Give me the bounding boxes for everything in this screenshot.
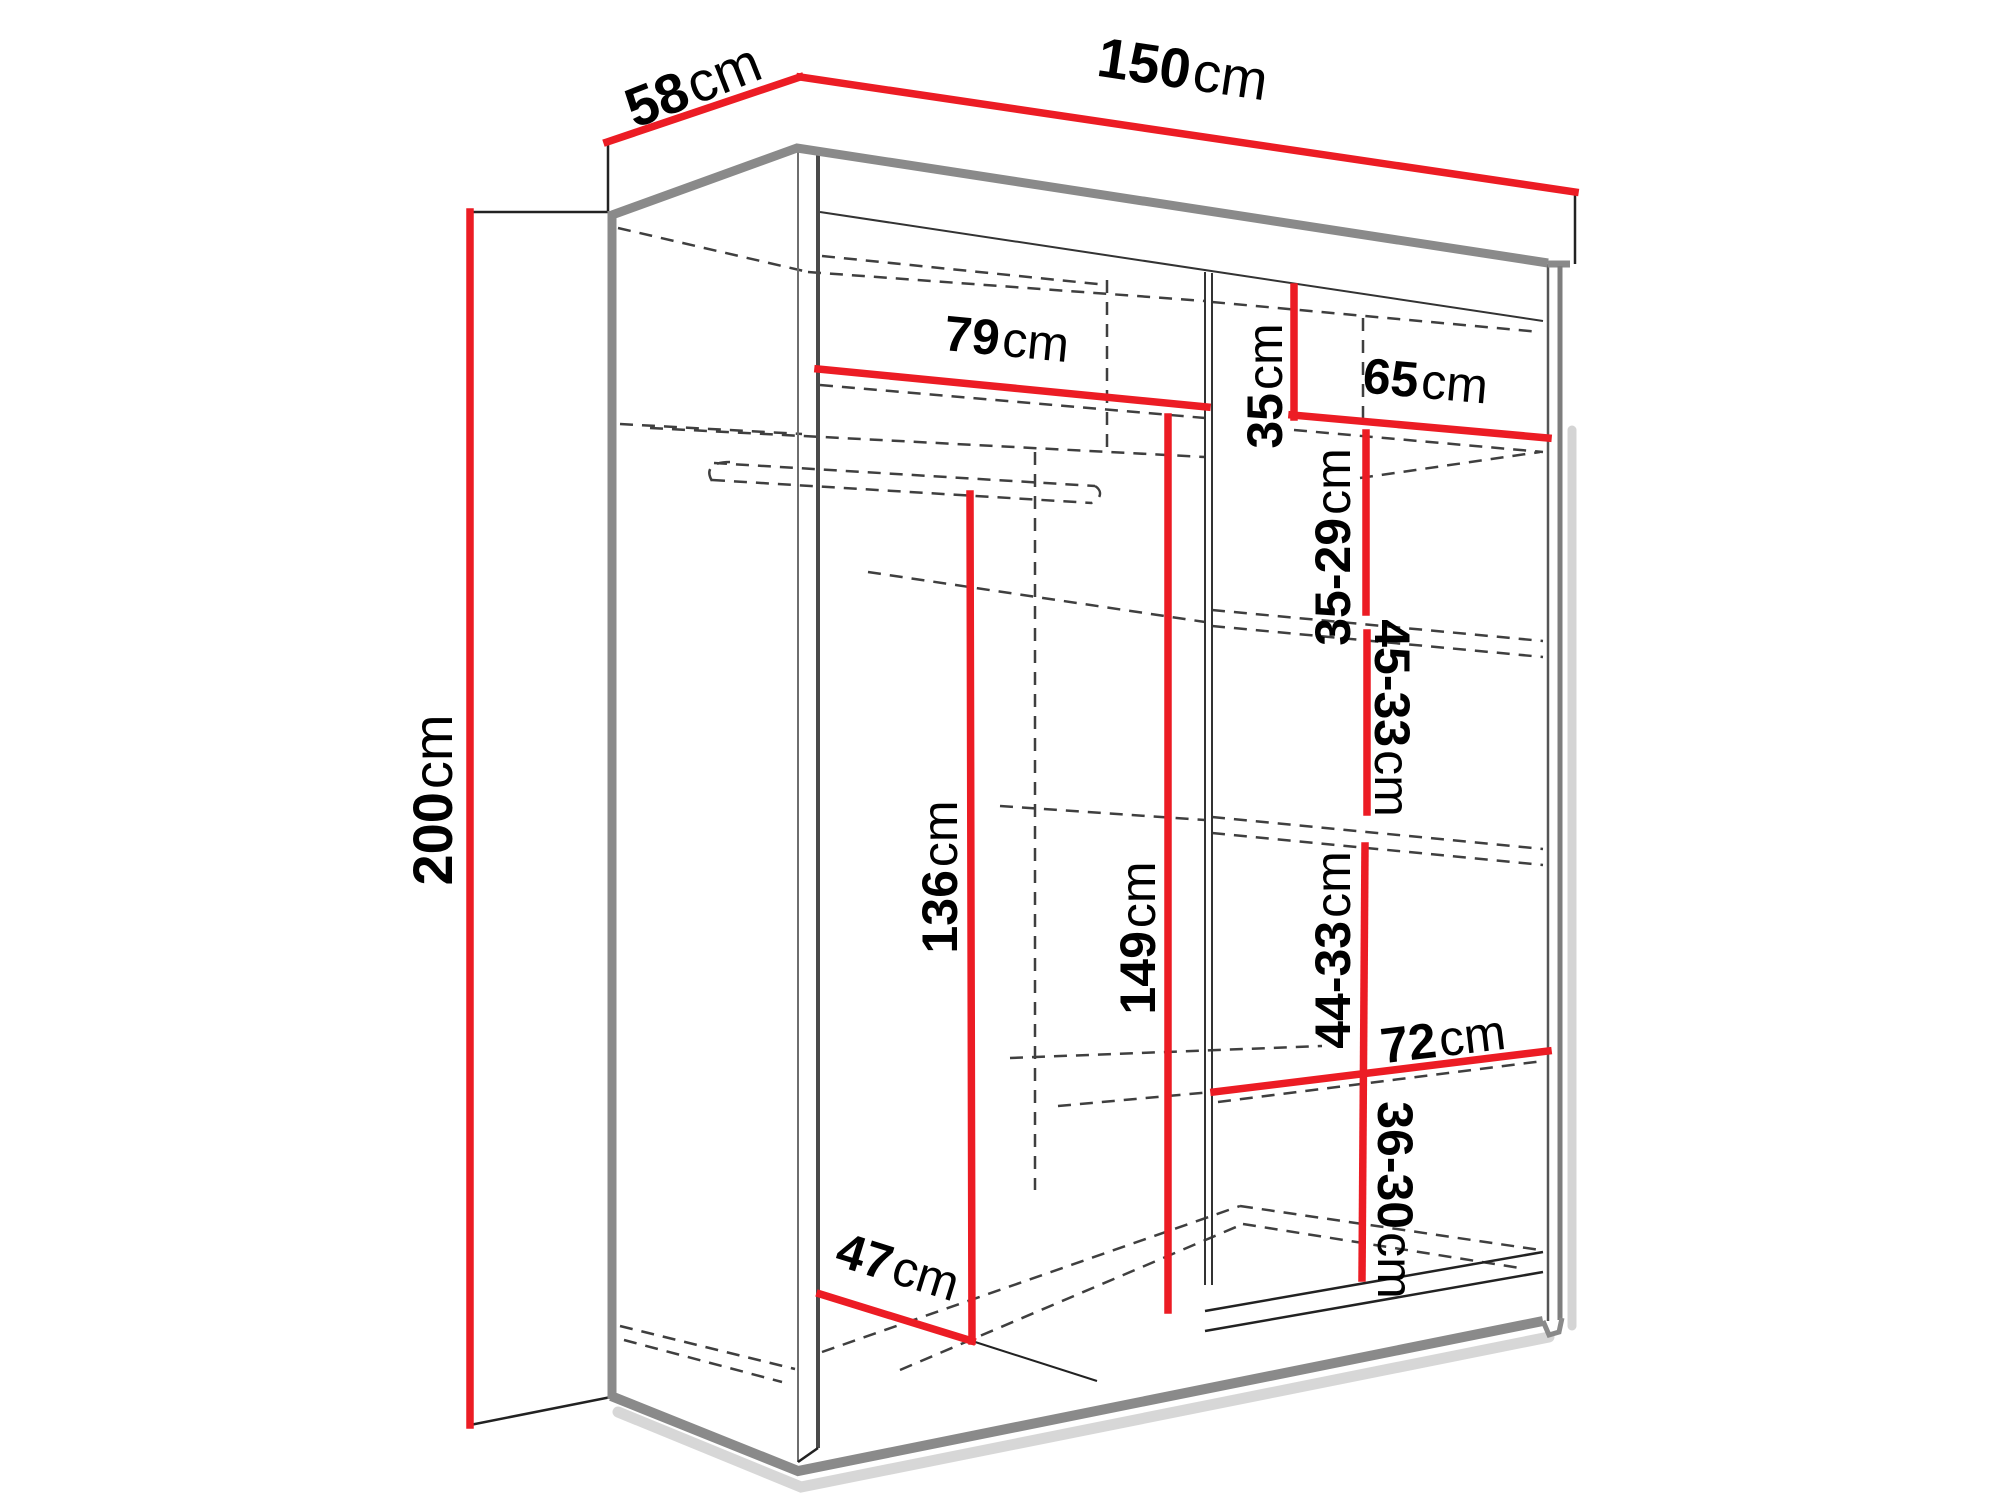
shelf-c-hidden-front [1212, 817, 1543, 849]
floor-side-hidden-1 [620, 1326, 795, 1369]
dim-left-shelf-label: 79cm [942, 305, 1072, 373]
shelf-c-hidden-back [1212, 833, 1543, 865]
side-shelf-projection [620, 424, 802, 434]
shelf-d-hidden-front [1218, 1061, 1543, 1102]
shelf-a-hidden-back [1360, 452, 1540, 478]
interior-floor-left-edge [972, 1341, 1097, 1381]
back-top-edge-inner [822, 256, 1107, 285]
hanging-rail-cap-right [1092, 486, 1100, 503]
wardrobe-shadow [618, 430, 1572, 1487]
interior-ceiling-edge [820, 212, 1543, 321]
dim-floor-depth-label: 47cm [830, 1221, 966, 1312]
dim-gap5-label: 36-30cm [1367, 1101, 1423, 1299]
ext-line-bottom-left [470, 1397, 611, 1425]
dimension-labels: 150cm 58cm 200cm 79cm 35cm 65cm 35-29cm … [401, 25, 1509, 1312]
plinth-bottom-edge [611, 1321, 1543, 1471]
dim-gap2-label: 35-29cm [1305, 448, 1361, 646]
shelf-c-projection [1000, 806, 1205, 820]
dim-line-right-shelf [1292, 415, 1548, 438]
dim-line-left-shelf [818, 369, 1207, 407]
wardrobe-dimension-diagram: 150cm 58cm 200cm 79cm 35cm 65cm 35-29cm … [0, 0, 2000, 1500]
dim-gap4-label: 44-33cm [1305, 851, 1361, 1049]
dim-depth-label: 58cm [616, 30, 769, 140]
dim-height-label: 200cm [401, 714, 464, 885]
dim-top-gap-label: 35cm [1237, 323, 1293, 448]
dim-width-label: 150cm [1094, 25, 1272, 112]
dim-hang-left-label: 136cm [912, 800, 968, 953]
left-shelf-hidden-back [650, 428, 1205, 457]
hanging-rail-top [714, 463, 1095, 486]
shelf-b-projection [868, 572, 1205, 622]
dim-bottom-shelf-label: 72cm [1377, 1004, 1508, 1074]
dim-gap3-label: 45-33cm [1364, 619, 1420, 817]
shelf-d-projection [1058, 1092, 1212, 1106]
side-top-hidden-edge [618, 228, 808, 272]
front-corner-bottom-edge [798, 1448, 818, 1462]
back-top-edge-left [808, 272, 1205, 301]
dim-line-hang-left [970, 494, 972, 1341]
dim-line-gap4-gap5 [1362, 846, 1365, 1278]
plinth-foot-notch [1543, 1318, 1562, 1335]
dim-hang-center-label: 149cm [1110, 861, 1166, 1014]
wardrobe-diagram-canvas: 150cm 58cm 200cm 79cm 35cm 65cm 35-29cm … [0, 0, 2000, 1500]
dim-line-width [800, 77, 1575, 192]
dim-right-shelf-label: 65cm [1361, 348, 1491, 415]
